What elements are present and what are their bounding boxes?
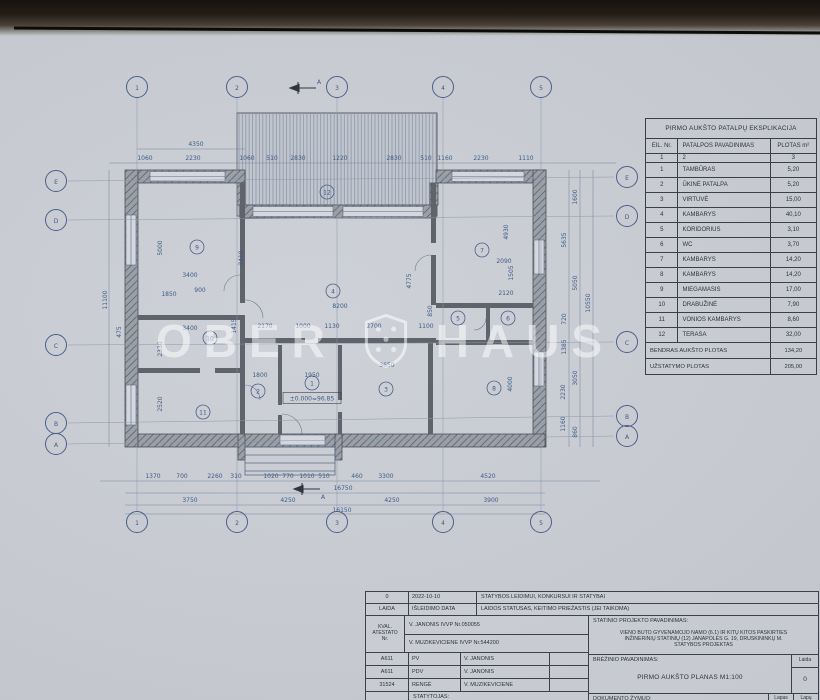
table-cell: TERASA xyxy=(678,328,770,343)
dim-label: 1130 xyxy=(324,323,339,330)
table-total-row: BENDRAS AUKŠTO PLOTAS134,20 xyxy=(646,343,817,359)
table-cell: 9 xyxy=(646,283,678,298)
person-cert-no: A611 xyxy=(366,666,409,678)
grid-bubble-label: B xyxy=(625,414,629,421)
person-cert-no: 31524 xyxy=(366,679,409,691)
room-number: 3 xyxy=(384,387,388,394)
document-mark-label: DOKUMENTO ŽYMUO: xyxy=(589,694,769,700)
revision-value: 0 xyxy=(366,592,409,603)
room-number: 10 xyxy=(206,336,214,343)
dim-label: 1160 xyxy=(560,416,567,431)
room-number: 12 xyxy=(323,190,331,197)
laida-label: LAIDA xyxy=(366,604,409,615)
lapas-label: Lapas xyxy=(769,694,794,700)
room-number: 2 xyxy=(256,389,260,396)
table-row: 5KORIDORIUS3,10 xyxy=(646,223,817,238)
dim-label: 1000 xyxy=(295,323,310,330)
dim-label: 8200 xyxy=(332,303,347,310)
table-row: 9MIEGAMASIS17,00 xyxy=(646,283,817,298)
table-cell: 5,20 xyxy=(770,178,816,193)
table-cell: PLOTAS m² xyxy=(770,139,816,154)
project-name: VIENO BUTO GYVENAMOJO NAMO (6.1) IR KITŲ… xyxy=(589,627,818,655)
table-row: 10DRABUŽINĖ7,90 xyxy=(646,298,817,313)
signature-cell xyxy=(550,653,588,665)
table-cell: 7,90 xyxy=(770,298,816,313)
table-cell: 7 xyxy=(646,253,678,268)
table-cell: 6 xyxy=(646,238,678,253)
section-label: A xyxy=(317,79,322,86)
project-block: STATINIO PROJEKTO PAVADINIMAS: VIENO BUT… xyxy=(589,616,818,700)
grid-bubble-label: B xyxy=(54,421,58,428)
table-cell: 3 xyxy=(646,193,678,208)
room-number: 8 xyxy=(492,386,496,393)
table-cell: 1 xyxy=(646,163,678,178)
laida-column-label: Laida xyxy=(792,655,818,668)
room-number: 1 xyxy=(310,381,314,388)
grid-bubble-label: 5 xyxy=(539,85,543,92)
dim-label: 1020 xyxy=(263,473,278,480)
table-row: 8KAMBARYS14,20 xyxy=(646,268,817,283)
table-colnum-row: 123 xyxy=(646,154,817,163)
dim-label: 510 xyxy=(266,155,278,162)
dim-label: 2700 xyxy=(366,323,381,330)
kval-atestato-label: KVAL. ATESTATO Nr. xyxy=(366,616,405,652)
table-cell: MIEGAMASIS xyxy=(678,283,770,298)
drawing-name-label: BRĖŽINIO PAVADINIMAS: xyxy=(589,655,791,663)
table-cell: 15,00 xyxy=(770,193,816,208)
table-cell: 14,20 xyxy=(770,268,816,283)
certificate-entry: V. MUZIKEVICIENE IVVP Nr.544200 xyxy=(405,635,588,653)
dim-label: 4775 xyxy=(406,273,413,288)
table-cell: KAMBARYS xyxy=(678,268,770,283)
person-name: V. MUZIKEVICIENE xyxy=(461,679,550,691)
grid-bubble-label: D xyxy=(625,214,630,221)
table-cell: 5 xyxy=(646,223,678,238)
date-label: IŠLEIDIMO DATA xyxy=(409,604,477,615)
grid-bubble-label: 1 xyxy=(135,85,139,92)
dim-label: 1505 xyxy=(508,265,515,280)
table-cell: 10 xyxy=(646,298,678,313)
dim-label: 475 xyxy=(116,326,123,338)
dim-label: 4520 xyxy=(480,473,495,480)
person-role: PDV xyxy=(409,666,461,678)
revision-date: 2022-10-10 xyxy=(409,592,477,603)
person-row: A611 PDV V. JANONIS xyxy=(366,666,588,679)
dim-label: 2230 xyxy=(473,155,488,162)
table-cell: 5,20 xyxy=(770,163,816,178)
dim-label: 3400 xyxy=(182,325,197,332)
dim-label: 1060 xyxy=(239,155,254,162)
kval-line: Nr. xyxy=(382,637,388,643)
person-name: V. JANONIS xyxy=(461,666,550,678)
grid-bubble-label: 4 xyxy=(441,520,445,527)
dim-label: 510 xyxy=(420,155,432,162)
section-label: A xyxy=(321,494,326,501)
dim-label: 2330 xyxy=(157,341,164,356)
statytojas-row: STATYTOJAS: xyxy=(366,692,588,700)
table-row: 4KAMBARYS40,10 xyxy=(646,208,817,223)
explication-table: PIRMO AUKŠTO PATALPŲ EKSPLIKACIJAEIL. Nr… xyxy=(645,118,817,375)
revision-header-row: LAIDA IŠLEIDIMO DATA LAIDOS STATUSAS, KE… xyxy=(366,604,818,616)
grid-bubble-label: 2 xyxy=(235,85,239,92)
table-row: 2ŪKINĖ PATALPA5,20 xyxy=(646,178,817,193)
dim-label: 2170 xyxy=(257,323,272,330)
dim-label: 1100 xyxy=(418,323,433,330)
entrance-steps xyxy=(245,447,335,475)
dim-label: 1800 xyxy=(252,372,267,379)
signature-cell xyxy=(550,666,588,678)
table-cell: TAMBŪRAS xyxy=(678,163,770,178)
dim-label: 2090 xyxy=(496,258,511,265)
project-name-label: STATINIO PROJEKTO PAVADINIMAS: xyxy=(589,616,818,627)
dim-label: 5000 xyxy=(157,240,164,255)
table-cell: 2 xyxy=(678,154,770,163)
table-cell: 11 xyxy=(646,313,678,328)
grid-bubble-label: E xyxy=(625,175,629,182)
person-role: RENGĖ xyxy=(409,679,461,691)
table-cell: VONIOS KAMBARYS xyxy=(678,313,770,328)
dim-label: 4250 xyxy=(280,497,295,504)
table-row: 1TAMBŪRAS5,20 xyxy=(646,163,817,178)
certificate-entry: V. JANONIS IVVP Nr.050055 xyxy=(405,616,588,635)
grid-bubble-label: C xyxy=(625,340,629,347)
dim-label: 850 xyxy=(427,305,434,317)
lapu-label: Lapų xyxy=(794,694,818,700)
dim-label: 3300 xyxy=(378,473,393,480)
table-cell: 12 xyxy=(646,328,678,343)
dim-label: 4350 xyxy=(188,141,203,148)
dim-label: 1220 xyxy=(332,155,347,162)
grid-bubble-label: 1 xyxy=(135,520,139,527)
table-row: 6WC3,70 xyxy=(646,238,817,253)
grid-bubble-label: 5 xyxy=(539,520,543,527)
dim-label: 3900 xyxy=(483,497,498,504)
dim-label: 770 xyxy=(282,473,294,480)
grid-bubble-label: 3 xyxy=(335,520,339,527)
dim-label: 2120 xyxy=(498,290,513,297)
dim-label: 16750 xyxy=(333,485,352,492)
title-block: 0 2022-10-10 STATYBOS LEIDIMUI, KONKURSU… xyxy=(365,591,819,700)
statytojas-label: STATYTOJAS: xyxy=(409,692,588,700)
dim-label: 2830 xyxy=(386,155,401,162)
person-cert-no: A611 xyxy=(366,653,409,665)
dim-label: 310 xyxy=(230,473,242,480)
table-row: 7KAMBARYS14,20 xyxy=(646,253,817,268)
dim-label: 900 xyxy=(194,287,206,294)
dim-label: 460 xyxy=(351,473,363,480)
table-row: 12TERASA32,00 xyxy=(646,328,817,343)
table-cell: 2 xyxy=(646,178,678,193)
room-number: 4 xyxy=(331,289,335,296)
table-cell: 3,10 xyxy=(770,223,816,238)
table-total-row: UŽSTATYMO PLOTAS205,00 xyxy=(646,359,817,375)
dim-label: 1370 xyxy=(145,473,160,480)
dim-label: 1850 xyxy=(161,291,176,298)
person-row: 31524 RENGĖ V. MUZIKEVICIENE xyxy=(366,679,588,692)
table-cell: PIRMO AUKŠTO PATALPŲ EKSPLIKACIJA xyxy=(646,119,817,139)
dim-label: 2830 xyxy=(290,155,305,162)
room-number: 7 xyxy=(480,248,484,255)
dim-label: 2260 xyxy=(207,473,222,480)
grid-bubble-label: C xyxy=(54,343,58,350)
table-cell: PATALPOS PAVADINIMAS xyxy=(678,139,770,154)
dim-label: 3750 xyxy=(182,497,197,504)
level-mark: ±0.000=96.85 xyxy=(290,396,335,403)
room-number: 9 xyxy=(195,245,199,252)
table-row: 11VONIOS KAMBARYS8,60 xyxy=(646,313,817,328)
room-number: 5 xyxy=(456,316,460,323)
empty-cell xyxy=(366,692,409,700)
table-cell: WC xyxy=(678,238,770,253)
grid-bubble-label: 4 xyxy=(441,85,445,92)
dim-label: 4250 xyxy=(384,497,399,504)
grid-bubble-label: 3 xyxy=(335,85,339,92)
project-name-line: STATYBOS PROJEKTAS xyxy=(674,643,733,649)
signature-cell xyxy=(550,679,588,691)
dim-label: 10550 xyxy=(585,293,592,312)
dim-label: 510 xyxy=(318,473,330,480)
dim-label: 1385 xyxy=(561,339,568,354)
table-cell: KAMBARYS xyxy=(678,253,770,268)
dim-label: 860 xyxy=(572,426,579,438)
table-cell: 32,00 xyxy=(770,328,816,343)
signatures-block: KVAL. ATESTATO Nr. V. JANONIS IVVP Nr.05… xyxy=(366,616,589,700)
person-row: A611 PV V. JANONIS xyxy=(366,653,588,666)
table-cell: 205,00 xyxy=(770,359,816,375)
dim-label: 1415 xyxy=(231,318,238,333)
dim-label: 1160 xyxy=(437,155,452,162)
dim-label: 1110 xyxy=(518,155,533,162)
laida-column-value: 0 xyxy=(792,668,818,693)
table-cell: 8,60 xyxy=(770,313,816,328)
dim-label: 3050 xyxy=(572,370,579,385)
table-cell: 8 xyxy=(646,268,678,283)
table-cell: 17,00 xyxy=(770,283,816,298)
person-role: PV xyxy=(409,653,461,665)
dim-label: 700 xyxy=(176,473,188,480)
table-cell: 3 xyxy=(770,154,816,163)
table-cell: EIL. Nr. xyxy=(646,139,678,154)
dim-label: 2410 xyxy=(238,250,245,265)
photographed-drawing-sheet: 1122334455EEDDCCBBAA43501060223010605102… xyxy=(0,0,820,700)
dim-label: 16150 xyxy=(332,507,351,514)
table-cell: 14,20 xyxy=(770,253,816,268)
table-cell: KAMBARYS xyxy=(678,208,770,223)
dim-label: 5050 xyxy=(572,275,579,290)
table-cell: 40,10 xyxy=(770,208,816,223)
dim-label: 2230 xyxy=(560,384,567,399)
drawing-name: PIRMO AUKŠTO PLANAS M1:100 xyxy=(589,663,791,693)
dim-label: 1600 xyxy=(572,189,579,204)
table-cell: UŽSTATYMO PLOTAS xyxy=(646,359,771,375)
table-header-row: EIL. Nr.PATALPOS PAVADINIMASPLOTAS m² xyxy=(646,139,817,154)
table-cell: VIRTUVĖ xyxy=(678,193,770,208)
dim-label: 1060 xyxy=(137,155,152,162)
dim-label: 11100 xyxy=(102,290,109,309)
table-cell: DRABUŽINĖ xyxy=(678,298,770,313)
room-number: 6 xyxy=(506,316,510,323)
table-cell: 3,70 xyxy=(770,238,816,253)
dim-label: 3400 xyxy=(182,272,197,279)
dim-label: 3650 xyxy=(379,362,394,369)
person-name: V. JANONIS xyxy=(461,653,550,665)
grid-bubble-label: E xyxy=(54,179,58,186)
table-cell: 4 xyxy=(646,208,678,223)
grid-bubble-label: A xyxy=(54,442,59,449)
room-number: 11 xyxy=(199,410,207,417)
table-cell: KORIDORIUS xyxy=(678,223,770,238)
grid-bubble-label: A xyxy=(625,434,630,441)
status-label: LAIDOS STATUSAS, KEITIMO PRIEŽASTIS (JEI… xyxy=(477,604,818,615)
revision-row: 0 2022-10-10 STATYBOS LEIDIMUI, KONKURSU… xyxy=(366,592,818,604)
table-cell: 1 xyxy=(646,154,678,163)
dim-label: 5635 xyxy=(561,232,568,247)
dim-label: 4000 xyxy=(507,376,514,391)
dim-label: 2230 xyxy=(185,155,200,162)
revision-status: STATYBOS LEIDIMUI, KONKURSUI IR STATYBAI xyxy=(477,592,818,603)
dim-label: 720 xyxy=(561,313,568,325)
table-cell: BENDRAS AUKŠTO PLOTAS xyxy=(646,343,771,359)
grid-bubble-label: D xyxy=(54,218,59,225)
table-cell: ŪKINĖ PATALPA xyxy=(678,178,770,193)
dim-label: 1010 xyxy=(299,473,314,480)
table-title-row: PIRMO AUKŠTO PATALPŲ EKSPLIKACIJA xyxy=(646,119,817,139)
grid-bubble-label: 2 xyxy=(235,520,239,527)
table-row: 3VIRTUVĖ15,00 xyxy=(646,193,817,208)
table-cell: 134,20 xyxy=(770,343,816,359)
dim-label: 2520 xyxy=(157,396,164,411)
dim-label: 4930 xyxy=(503,224,510,239)
